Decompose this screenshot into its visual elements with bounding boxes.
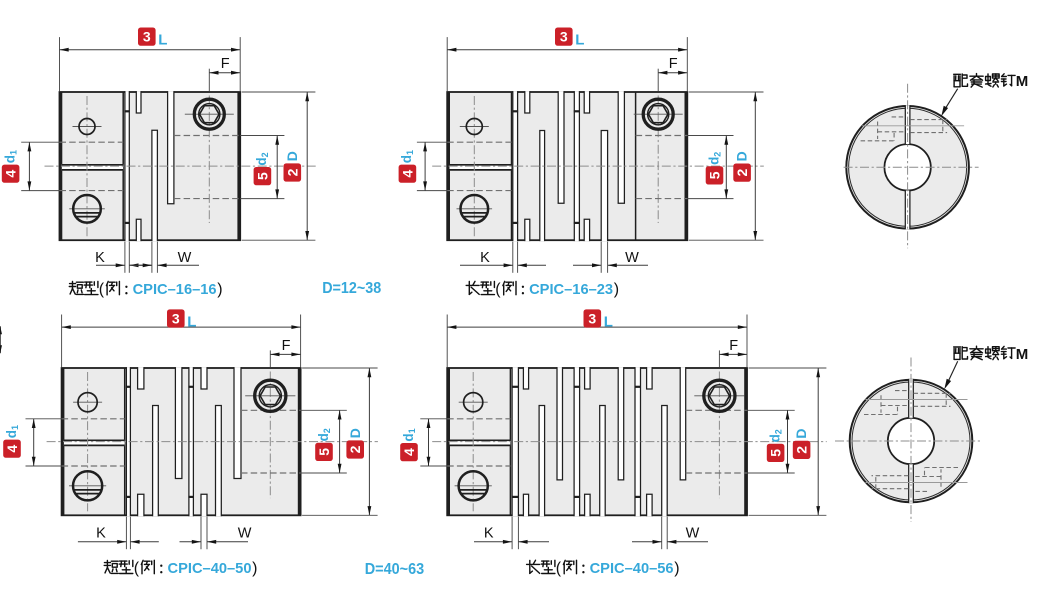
svg-text:3: 3 [143, 29, 151, 45]
svg-text:L: L [575, 32, 584, 49]
svg-text:): ) [614, 281, 619, 298]
svg-text:W: W [178, 250, 192, 266]
svg-text:D: D [347, 428, 363, 438]
svg-text:3: 3 [172, 311, 180, 327]
svg-text:W: W [625, 250, 639, 266]
svg-text:D: D [793, 429, 809, 439]
svg-text:5: 5 [707, 171, 723, 179]
svg-text:F: F [729, 338, 738, 354]
svg-text:K: K [96, 526, 106, 542]
svg-text:5: 5 [768, 449, 784, 457]
svg-text:K: K [484, 526, 494, 542]
svg-text:2: 2 [794, 446, 810, 454]
svg-text:3: 3 [560, 29, 568, 45]
svg-text:CPIC–16–23: CPIC–16–23 [529, 281, 613, 298]
svg-text:F: F [669, 56, 678, 72]
svg-text:W: W [238, 526, 252, 542]
svg-text:(: ( [495, 281, 501, 298]
svg-text:5: 5 [254, 172, 270, 180]
svg-text:(: ( [134, 560, 140, 577]
svg-text:2: 2 [734, 168, 750, 176]
svg-text:2: 2 [347, 445, 363, 453]
svg-text:K: K [95, 250, 105, 266]
svg-text:CPIC–40–56: CPIC–40–56 [590, 560, 674, 577]
svg-text:): ) [674, 560, 679, 577]
svg-text:F: F [282, 338, 291, 354]
svg-text:D: D [284, 151, 300, 161]
svg-text:L: L [187, 313, 196, 330]
svg-text:F: F [221, 56, 230, 72]
svg-text:): ) [252, 560, 257, 577]
svg-text:3: 3 [588, 311, 596, 327]
svg-text:K: K [480, 250, 490, 266]
svg-text:4: 4 [3, 170, 19, 178]
svg-text:L: L [604, 313, 613, 330]
svg-text:L: L [158, 32, 167, 49]
svg-text:2: 2 [284, 168, 300, 176]
svg-text:CPIC–40–50: CPIC–40–50 [168, 560, 252, 577]
svg-text:W: W [686, 526, 700, 542]
svg-text:D=40~63: D=40~63 [365, 561, 425, 578]
svg-text:D: D [734, 151, 750, 161]
svg-text:CPIC–16–16: CPIC–16–16 [133, 281, 217, 298]
svg-text:M: M [1016, 346, 1029, 363]
svg-text:D=12~38: D=12~38 [322, 280, 381, 297]
svg-text:): ) [217, 281, 222, 298]
svg-text:(: ( [556, 560, 562, 577]
svg-text:(: ( [99, 281, 105, 298]
svg-text:4: 4 [4, 445, 20, 453]
svg-text:4: 4 [401, 448, 417, 456]
svg-text:M: M [1016, 73, 1029, 90]
svg-text:4: 4 [399, 170, 415, 178]
svg-text:5: 5 [316, 448, 332, 456]
